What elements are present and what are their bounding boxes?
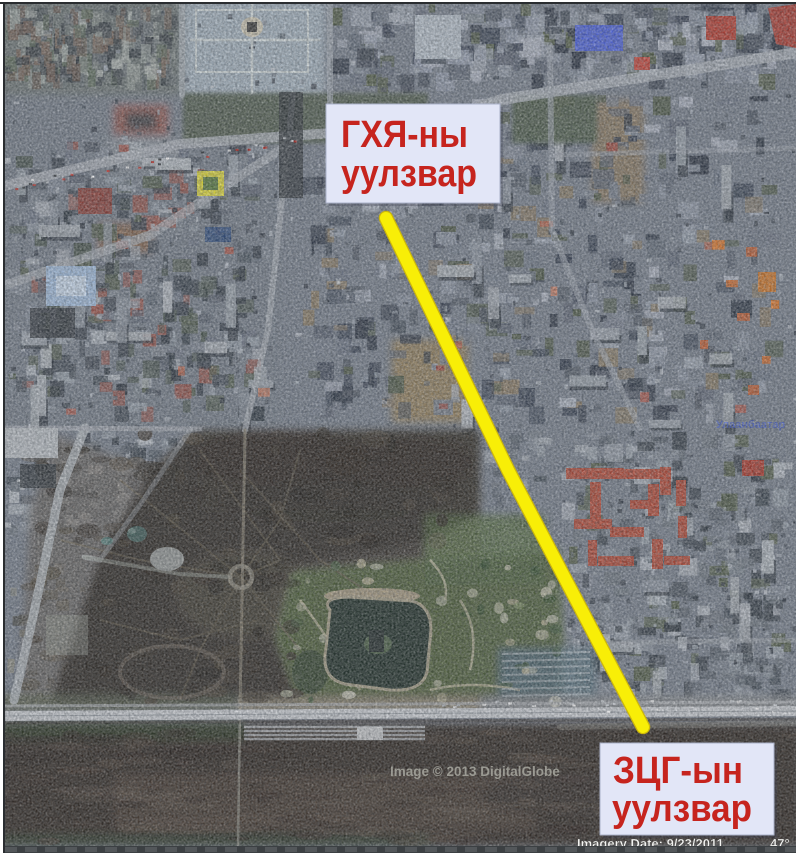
svg-text:уулзвар: уулзвар (341, 153, 477, 195)
svg-text:ЗЦГ-ын: ЗЦГ-ын (613, 750, 743, 792)
svg-text:ГХЯ-ны: ГХЯ-ны (341, 114, 468, 156)
svg-text:Image © 2013 DigitalGlobe: Image © 2013 DigitalGlobe (390, 764, 560, 779)
svg-text:уулзвар: уулзвар (612, 788, 752, 830)
